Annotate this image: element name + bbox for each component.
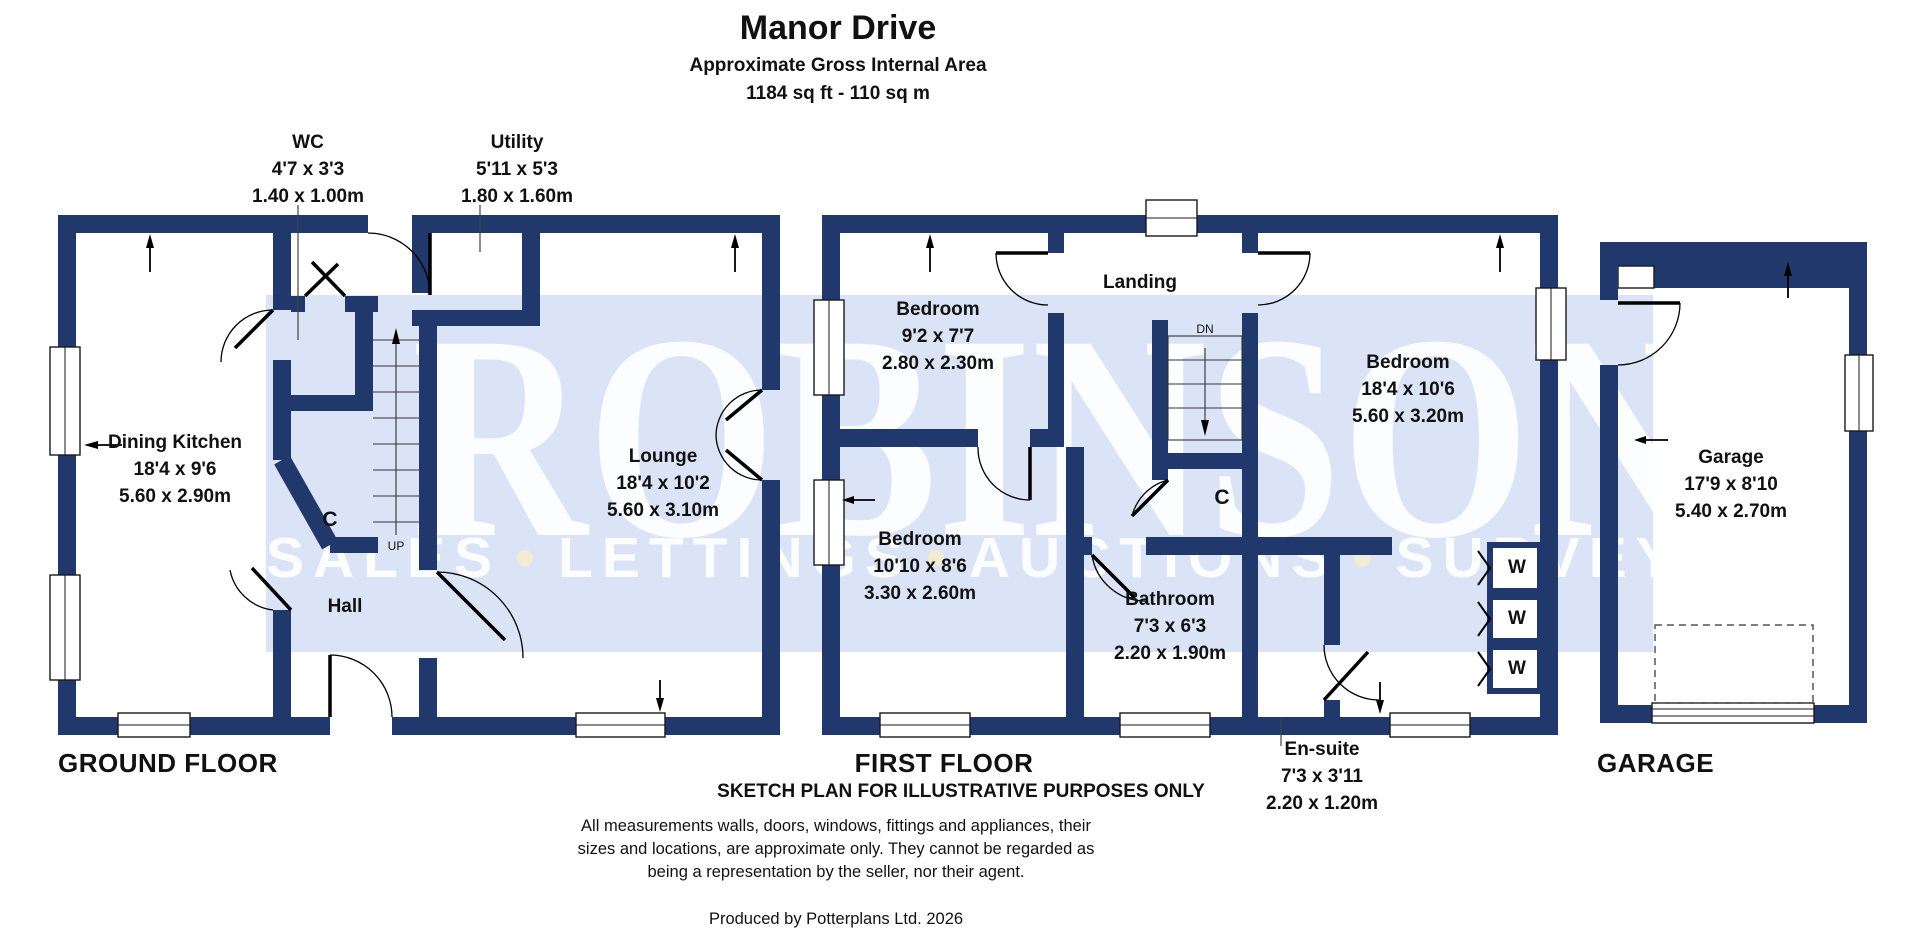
room-label-wc: WC 4'7 x 3'3 1.40 x 1.00m <box>252 129 364 210</box>
wardrobe-label-2: W <box>1508 608 1526 630</box>
garage-floor-label: GARAGE <box>1597 748 1714 779</box>
sketch-plan-note: SKETCH PLAN FOR ILLUSTRATIVE PURPOSES ON… <box>717 781 1205 803</box>
stairs-down <box>1168 336 1242 440</box>
page-subtitle: Approximate Gross Internal Area <box>689 54 986 78</box>
room-label-lounge: Lounge 18'4 x 10'2 5.60 x 3.10m <box>607 443 719 524</box>
stairs-up-label: UP <box>388 539 405 553</box>
room-label-hall: Hall <box>328 593 363 620</box>
room-label-bedroom1: Bedroom 9'2 x 7'7 2.80 x 2.30m <box>882 296 994 377</box>
room-label-utility: Utility 5'11 x 5'3 1.80 x 1.60m <box>461 129 573 210</box>
wardrobe-label-1: W <box>1508 557 1526 579</box>
front-door-arc <box>330 655 392 717</box>
bedroom2-door-arc <box>978 447 1030 500</box>
stairs-up <box>373 328 419 535</box>
page-title: Manor Drive <box>740 8 937 48</box>
bedroom1-door-arc <box>996 253 1048 305</box>
hall-kitchen-door-arc <box>230 570 273 610</box>
disclaimer-line-2: sizes and locations, are approximate onl… <box>578 838 1095 861</box>
credit-line: Produced by Potterplans Ltd. 2026 <box>709 908 963 931</box>
stairs-down-label: DN <box>1196 322 1213 336</box>
gross-internal-area: 1184 sq ft - 110 sq m <box>746 82 930 106</box>
room-label-bedroom3: Bedroom 18'4 x 10'6 5.60 x 3.20m <box>1352 349 1464 430</box>
room-label-bedroom2: Bedroom 10'10 x 8'6 3.30 x 2.60m <box>864 526 976 607</box>
room-label-garage: Garage 17'9 x 8'10 5.40 x 2.70m <box>1675 444 1787 525</box>
first-floor-label: FIRST FLOOR <box>855 748 1034 779</box>
floorplan-page: ROBINSONS SALES•LETTINGS•AUCTIONS•SURVEY… <box>0 0 1920 947</box>
disclaimer-line-3: being a representation by the seller, no… <box>648 861 1025 884</box>
garage-door-arc <box>1618 303 1680 365</box>
ground-floor-label: GROUND FLOOR <box>58 748 278 779</box>
bedroom3-door-arc <box>1258 253 1310 305</box>
room-label-ensuite: En-suite 7'3 x 3'11 2.20 x 1.20m <box>1266 736 1378 817</box>
cupboard-label-first: C <box>1214 486 1229 510</box>
cupboard-label-ground: C <box>322 508 337 532</box>
garage-dashed-area <box>1655 625 1813 703</box>
wardrobe-label-3: W <box>1508 658 1526 680</box>
room-label-landing: Landing <box>1103 269 1177 296</box>
disclaimer-line-1: All measurements walls, doors, windows, … <box>581 815 1091 838</box>
room-label-dining-kitchen: Dining Kitchen 18'4 x 9'6 5.60 x 2.90m <box>108 429 242 510</box>
room-label-bathroom: Bathroom 7'3 x 6'3 2.20 x 1.90m <box>1114 586 1226 667</box>
